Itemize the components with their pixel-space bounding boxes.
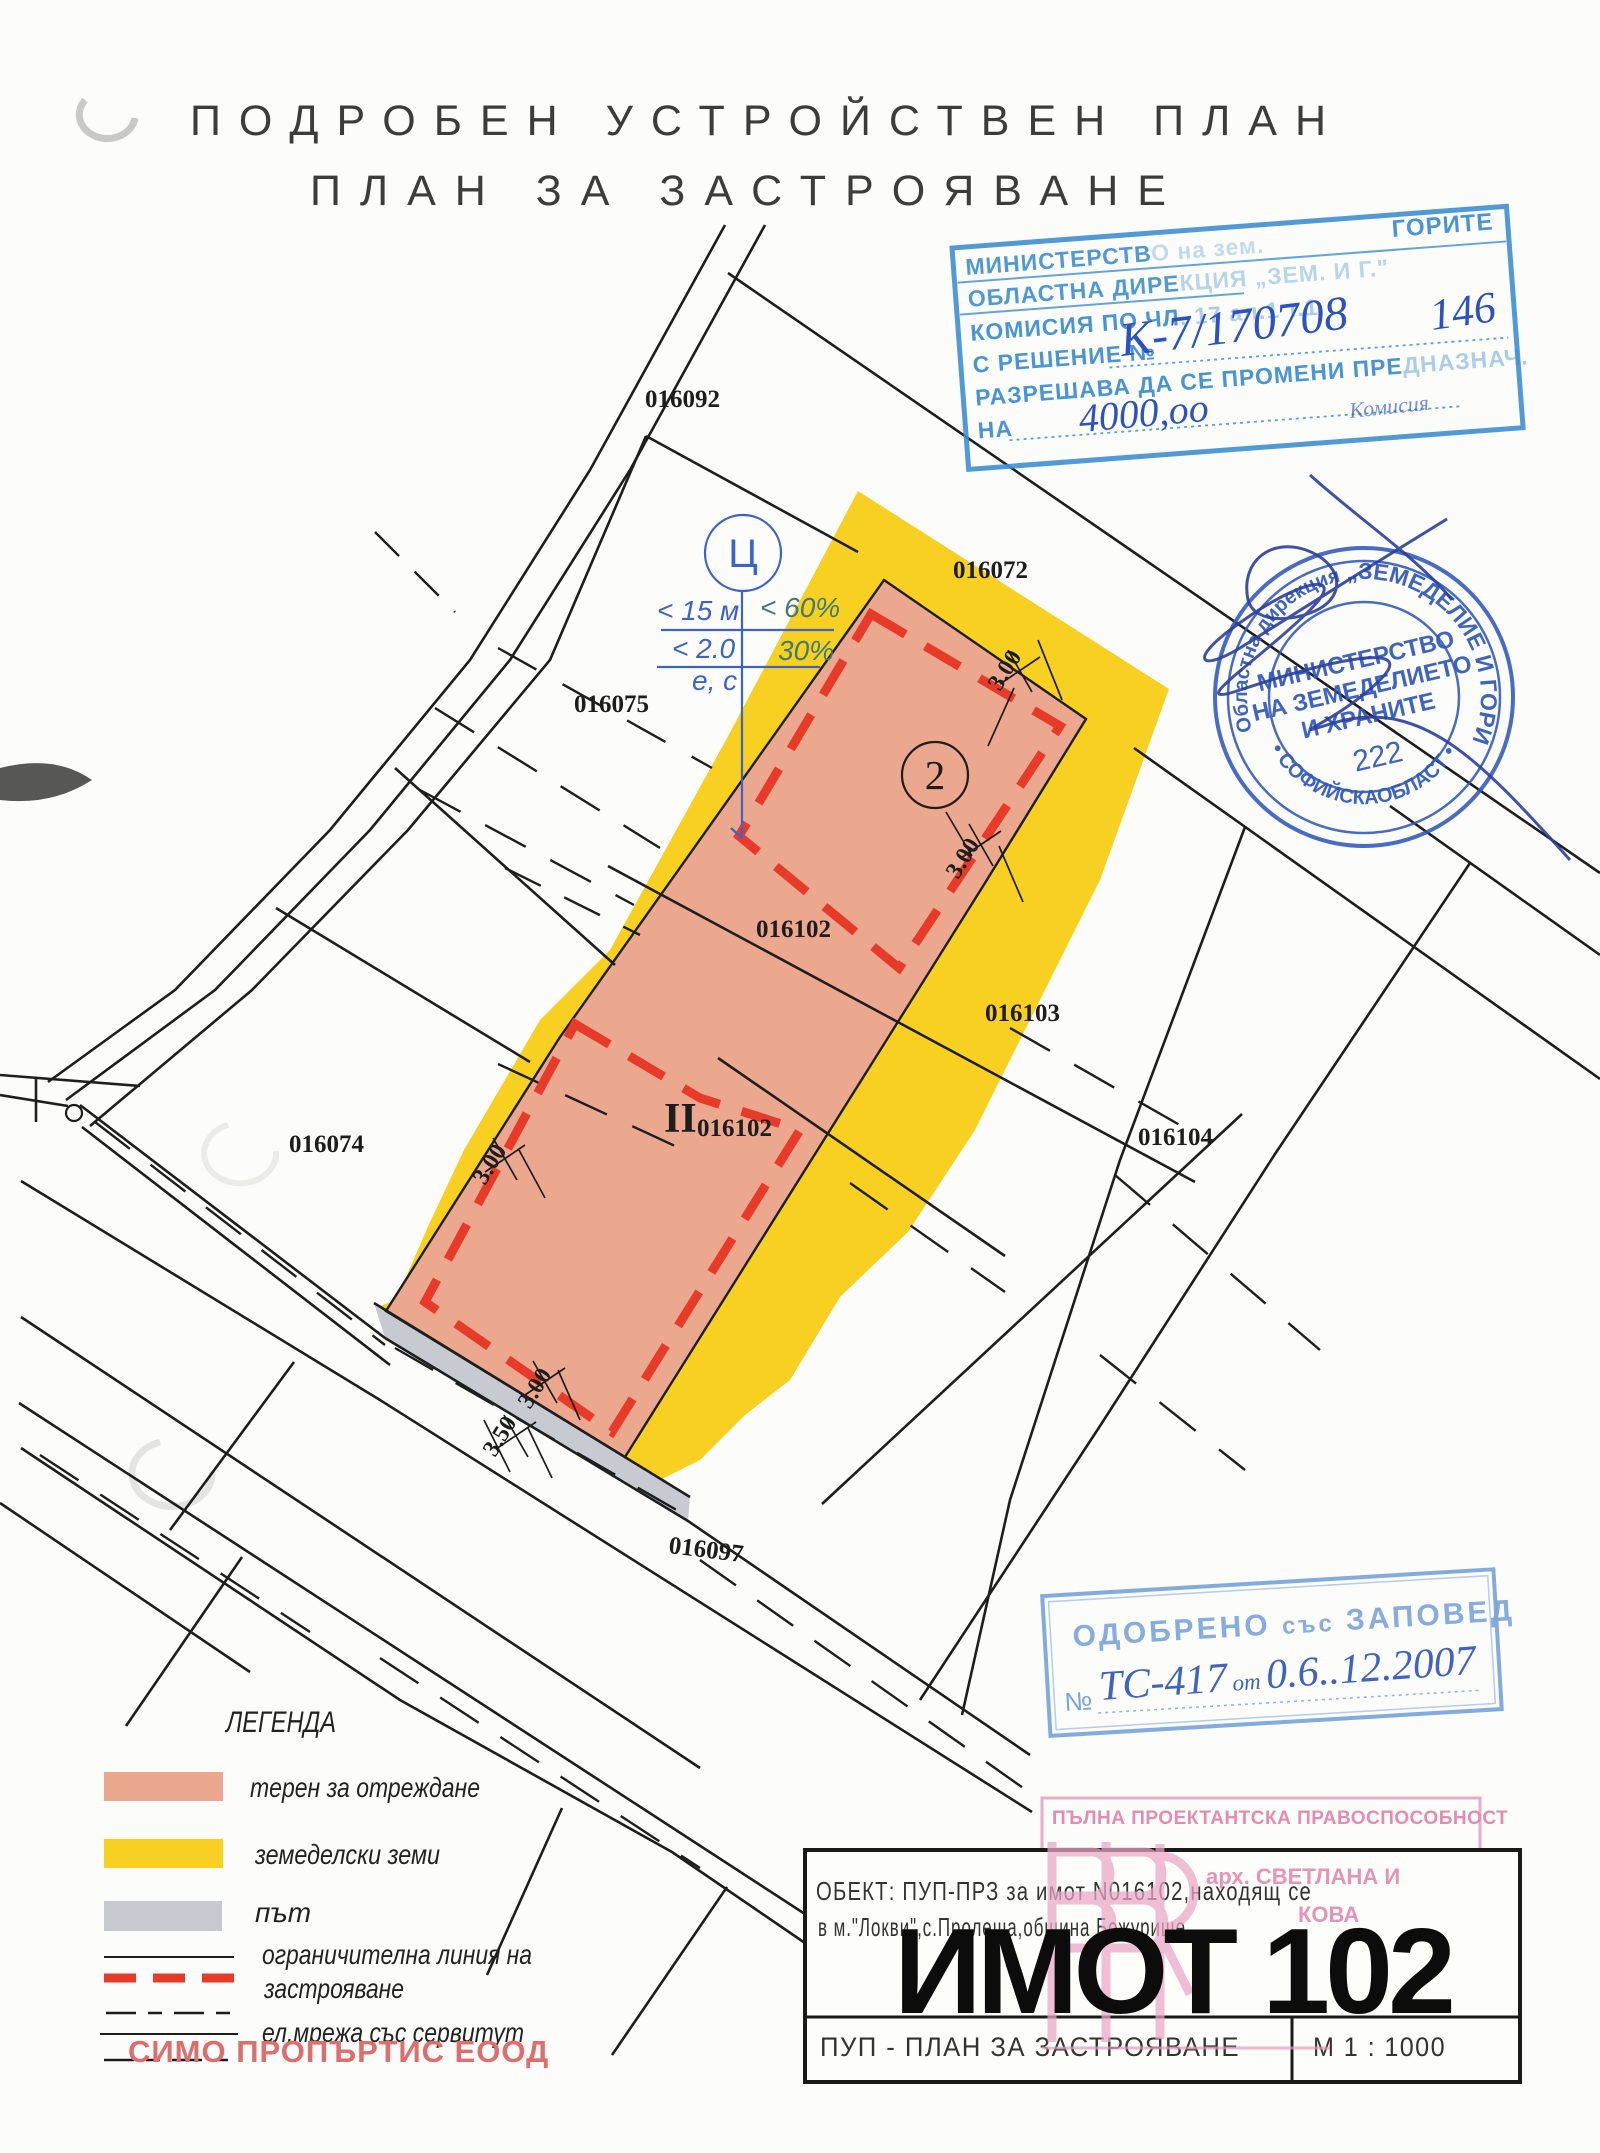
svg-text:№: № <box>1064 1685 1094 1717</box>
svg-text:НА: НА <box>977 415 1014 444</box>
svg-text:30%: 30% <box>778 635 834 666</box>
svg-text:ограничителна линия на: ограничителна линия на <box>262 1939 532 1970</box>
svg-text:146: 146 <box>1427 282 1499 340</box>
svg-text:016102: 016102 <box>756 916 831 943</box>
svg-text:е, с: е, с <box>692 665 737 696</box>
svg-text:016074: 016074 <box>289 1131 365 1158</box>
svg-text:016072: 016072 <box>953 557 1028 584</box>
svg-text:016092: 016092 <box>645 386 720 413</box>
svg-text:земеделски земи: земеделски земи <box>254 1839 440 1870</box>
svg-text:< 60%: < 60% <box>760 592 840 623</box>
svg-text:ИМОТ 102: ИМОТ 102 <box>894 1903 1456 2039</box>
svg-text:II: II <box>664 1096 697 1142</box>
svg-text:ЛЕГЕНДА: ЛЕГЕНДА <box>224 1706 336 1739</box>
svg-text:016075: 016075 <box>574 691 649 718</box>
svg-text:016104: 016104 <box>1138 1124 1214 1151</box>
svg-text:2: 2 <box>925 752 946 798</box>
svg-text:< 15 м: < 15 м <box>657 595 739 626</box>
svg-text:ПЛАН ЗА ЗАСТРОЯВАНЕ: ПЛАН ЗА ЗАСТРОЯВАНЕ <box>310 167 1185 215</box>
svg-text:път: път <box>255 1897 311 1928</box>
svg-text:застрояване: застрояване <box>263 1973 404 2004</box>
svg-text:ПЪЛНА ПРОЕКТАНТСКА ПРАВОСПОСОБ: ПЪЛНА ПРОЕКТАНТСКА ПРАВОСПОСОБНОСТ <box>1052 1808 1508 1829</box>
svg-text:016102: 016102 <box>697 1115 772 1142</box>
svg-text:терен за отреждане: терен за отреждане <box>250 1772 480 1803</box>
svg-text:Ц: Ц <box>728 532 758 576</box>
svg-text:арх. СВЕТЛАНА И: арх. СВЕТЛАНА И <box>1206 1864 1400 1889</box>
svg-text:< 2.0: < 2.0 <box>672 633 735 664</box>
svg-text:СИМО ПРОПЪРТИС ЕООД: СИМО ПРОПЪРТИС ЕООД <box>128 2034 549 2069</box>
svg-text:016103: 016103 <box>985 1000 1060 1027</box>
svg-text:ПОДРОБЕН УСТРОЙСТВЕН ПЛАН: ПОДРОБЕН УСТРОЙСТВЕН ПЛАН <box>190 96 1344 145</box>
